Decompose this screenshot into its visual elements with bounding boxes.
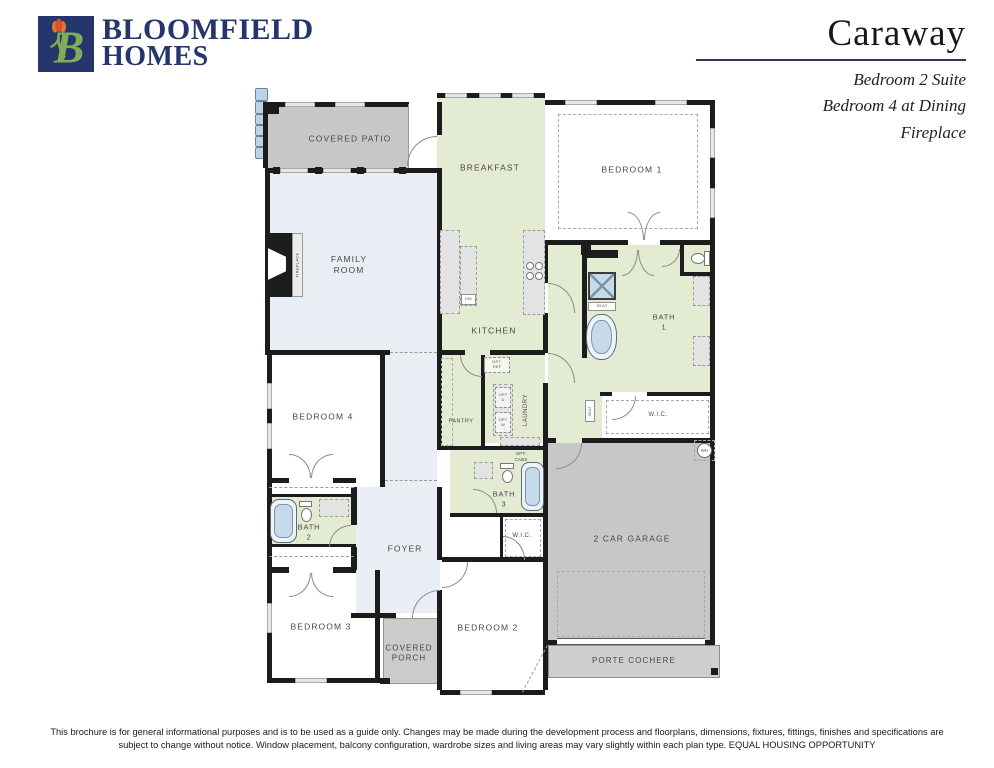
bath2-toilet-tank: [299, 501, 312, 507]
disclaimer-line1: This brochure is for general information…: [0, 726, 994, 739]
bloomfield-homes-logo: B BLOOMFIELD HOMES: [38, 16, 314, 72]
door-arc: [311, 454, 333, 478]
bath2-vanity: [319, 499, 349, 517]
room-label-family-room: FAMILY ROOM: [331, 254, 367, 276]
window: [655, 100, 687, 105]
water-heater-icon: WH: [697, 443, 712, 458]
toilet-icon: [691, 253, 705, 264]
wall: [265, 350, 390, 355]
window: [295, 678, 327, 683]
wall: [440, 690, 545, 695]
wall: [680, 245, 684, 275]
wall: [399, 167, 406, 174]
room-label-pantry: PANTRY: [449, 418, 474, 425]
bath3-toilet-icon: [502, 470, 513, 483]
disclaimer-text: This brochure is for general information…: [0, 726, 994, 753]
plan-name-title: Caraway: [666, 12, 966, 55]
garage-door-dashes: [557, 571, 705, 637]
door-arc: [311, 573, 333, 597]
master-tub-water: [591, 320, 612, 354]
wall: [647, 392, 715, 396]
wall: [380, 355, 385, 487]
room-label-bedroom3: BEDROOM 3: [291, 621, 352, 632]
window: [460, 690, 492, 695]
room-label-foyer: FOYER: [388, 543, 423, 554]
wall: [490, 350, 545, 355]
wall: [660, 240, 715, 245]
logo-wordmark: BLOOMFIELD HOMES: [102, 16, 314, 69]
room-label-covered-porch: COVERED PORCH: [385, 644, 432, 665]
window: [366, 168, 394, 173]
wall: [600, 392, 612, 396]
wall: [267, 355, 272, 487]
room-label-porte-cochere: PORTE COCHERE: [592, 656, 676, 666]
wall: [351, 487, 357, 525]
optional-washer-label: OPT W: [495, 412, 511, 433]
wall: [267, 494, 356, 497]
window: [267, 423, 272, 449]
stove-burner-icon: [526, 272, 534, 280]
room-label-laundry: LAUNDRY: [523, 394, 531, 426]
stove-burner-icon: [535, 272, 543, 280]
wall: [333, 567, 356, 573]
kitchen-island-counter: [440, 230, 460, 314]
brochure-page: B BLOOMFIELD HOMES Caraway Bedroom 2 Sui…: [0, 0, 994, 768]
title-divider: [696, 59, 966, 61]
region-breakfast-kitchen: [437, 93, 545, 355]
logo-tulip-icon: B: [38, 16, 94, 72]
wall: [263, 102, 279, 114]
wall: [581, 245, 591, 255]
vanity-counter: [693, 276, 710, 306]
cased-opening-dashes: [385, 480, 437, 481]
wall: [315, 167, 322, 174]
dishwasher-label: DW: [461, 294, 476, 305]
hall-seat-box: SEAT: [585, 400, 595, 422]
room-label-kitchen: KITCHEN: [471, 325, 516, 336]
region-hall: [380, 355, 437, 487]
shower-seat-label: SEAT: [588, 302, 616, 311]
optional-dryer-label: OPT D: [495, 387, 511, 408]
wall: [710, 100, 715, 245]
room-label-wic-master: W.I.C.: [648, 412, 667, 420]
room-label-garage: 2 CAR GARAGE: [594, 533, 671, 544]
kitchen-sink-icon: [255, 88, 268, 101]
window: [512, 93, 534, 98]
wall: [710, 443, 715, 645]
wall: [437, 446, 545, 450]
bath2-toilet-icon: [301, 508, 312, 522]
wall: [333, 478, 356, 483]
window: [280, 168, 308, 173]
door-arc: [442, 562, 468, 588]
optional-cabinets-counter: [500, 437, 540, 446]
window: [710, 188, 715, 218]
window: [267, 603, 272, 633]
room-label-covered-patio: COVERED PATIO: [309, 133, 392, 144]
bath2-tub-water: [274, 504, 293, 538]
bath3-toilet-tank: [500, 463, 514, 469]
window: [335, 102, 365, 107]
room-label-bath1: BATH 1: [653, 312, 676, 332]
hall-seat-label: SEAT: [588, 406, 592, 416]
disclaimer-line2: subject to change without notice. Window…: [0, 739, 994, 752]
shower-icon: [588, 272, 616, 300]
toilet-tank-icon: [704, 251, 710, 266]
room-label-wic-bed2: W.I.C.: [512, 533, 531, 541]
optional-refrigerator-label: OPT. REF: [484, 357, 510, 373]
vanity-counter: [693, 336, 710, 366]
wall: [543, 383, 548, 443]
window: [267, 383, 272, 409]
window: [479, 93, 501, 98]
room-label-bedroom4: BEDROOM 4: [293, 411, 354, 422]
window: [565, 100, 597, 105]
door-arc: [407, 136, 437, 166]
wall: [380, 678, 390, 684]
garage-door-line: [557, 638, 705, 645]
region-mud-hall: [548, 392, 604, 443]
wall: [267, 478, 289, 483]
wall: [548, 438, 556, 443]
closet-rod-dashes: [269, 487, 354, 488]
wall: [267, 567, 289, 573]
wall: [437, 487, 442, 560]
wall: [375, 570, 380, 683]
stove-burner-icon: [526, 262, 534, 270]
logo-line2: HOMES: [102, 44, 314, 70]
floor-plan: FIREPLACE DW OPT. REF OPT D OPT W OPT. C…: [255, 88, 723, 700]
cased-opening-dashes: [390, 352, 437, 353]
room-label-bath2: BATH 2: [298, 522, 321, 542]
logo-line1: BLOOMFIELD: [102, 16, 314, 44]
room-label-bedroom2: BEDROOM 2: [458, 622, 519, 633]
wall: [437, 102, 442, 135]
wall: [503, 514, 543, 517]
room-label-breakfast: BREAKFAST: [460, 162, 520, 173]
wall: [351, 613, 396, 618]
room-label-bedroom1: BEDROOM 1: [602, 164, 663, 175]
optional-cabinets-label: OPT. CABS: [514, 451, 527, 463]
room-label-fireplace: FIREPLACE: [294, 253, 299, 278]
room-label-bath3: BATH 3: [493, 489, 516, 509]
closet-rod-dashes: [269, 556, 354, 557]
porte-cochere-column: [711, 668, 718, 675]
wall: [273, 167, 280, 174]
window: [285, 102, 315, 107]
bath3-vanity: [474, 462, 493, 479]
pantry-shelf-dashes: [441, 358, 453, 446]
wall: [357, 167, 364, 174]
wall: [543, 313, 548, 353]
door-arc: [289, 573, 311, 597]
stove-burner-icon: [535, 262, 543, 270]
window: [710, 128, 715, 158]
bath3-tub-water: [525, 467, 540, 506]
window: [445, 93, 467, 98]
door-arc: [289, 454, 311, 478]
window: [323, 168, 351, 173]
